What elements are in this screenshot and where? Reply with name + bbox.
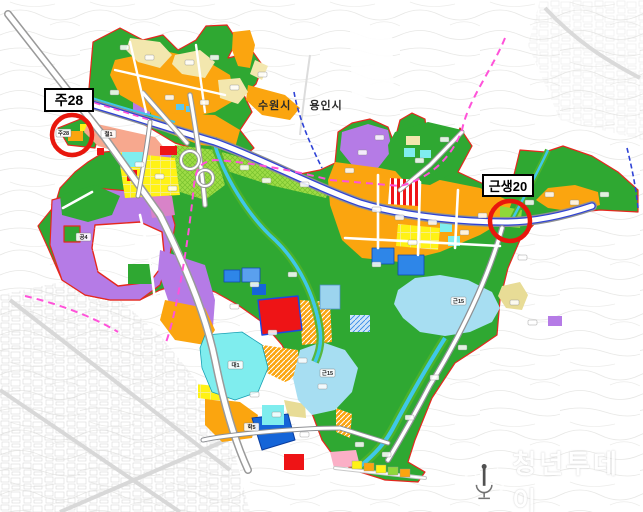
parcel-chip [375, 135, 384, 140]
zone-label: 근15 [322, 369, 333, 377]
parcel-chip [262, 178, 271, 183]
parcel-chip [230, 304, 239, 309]
parcel-chip [298, 358, 307, 363]
callout-box-ju28: 주28 [44, 88, 94, 112]
zone-label: 공4 [79, 233, 88, 241]
parcel-chip [408, 240, 417, 245]
parcel-chip [168, 186, 177, 191]
parcel-chip [210, 55, 219, 60]
parcel-chip [230, 85, 239, 90]
parcel-chip [165, 95, 174, 100]
parcel-chip [110, 90, 119, 95]
map-canvas: 철1주28공4근15근15대1학5 [0, 0, 643, 512]
parcel-chip [545, 192, 554, 197]
parcel-chip [200, 100, 209, 105]
city-label-suwon: 수원시 [258, 100, 291, 112]
parcel-chip [478, 213, 487, 218]
zone-label: 대1 [231, 361, 239, 369]
parcel-chip [250, 282, 259, 287]
parcel-chip [272, 412, 281, 417]
parcel-chip [120, 45, 129, 50]
parcel-chip [288, 272, 297, 277]
parcel-chip [355, 442, 364, 447]
parcel-chip [395, 215, 404, 220]
parcel-chip [345, 168, 354, 173]
parcel-chip [528, 320, 537, 325]
parcel-chip [430, 375, 439, 380]
parcel-chip [135, 162, 144, 167]
zone-label: 주28 [58, 129, 69, 137]
zone-label: 학5 [247, 423, 255, 431]
parcel-chip [358, 150, 367, 155]
parcel-chip [250, 392, 259, 397]
parcel-chip [372, 262, 381, 267]
parcel-chip [300, 432, 309, 437]
parcel-chip [518, 255, 527, 260]
zone-label: 철1 [104, 130, 112, 138]
parcel-chip [318, 384, 327, 389]
parcel-chip [458, 345, 467, 350]
parcel-chip [415, 158, 424, 163]
parcel-chip [428, 220, 437, 225]
parcel-chip [372, 207, 381, 212]
parcel-chip [185, 60, 194, 65]
parcel-chip [460, 230, 469, 235]
parcel-chip [258, 72, 267, 77]
city-label-yongin: 용인시 [309, 100, 342, 112]
zoning-map-image: 철1주28공4근15근15대1학5 주28 근생20 수원시 용인시 청년투데이 [0, 0, 643, 512]
parcel-chip [440, 137, 449, 142]
zone-label: 근15 [453, 297, 464, 305]
parcel-chip [405, 415, 414, 420]
parcel-chip [145, 55, 154, 60]
parcel-chip [268, 330, 277, 335]
parcel-chip [525, 200, 534, 205]
parcel-chip [300, 182, 309, 187]
callout-box-geunsaeng20: 근생20 [482, 174, 534, 197]
parcel-chip [155, 174, 164, 179]
parcel-chip [382, 452, 391, 457]
parcel-chip [510, 300, 519, 305]
parcel-chip [240, 165, 249, 170]
parcel-chip [570, 200, 579, 205]
city-boundary-labels: 수원시 용인시 [258, 97, 357, 113]
parcel-chip [600, 192, 609, 197]
